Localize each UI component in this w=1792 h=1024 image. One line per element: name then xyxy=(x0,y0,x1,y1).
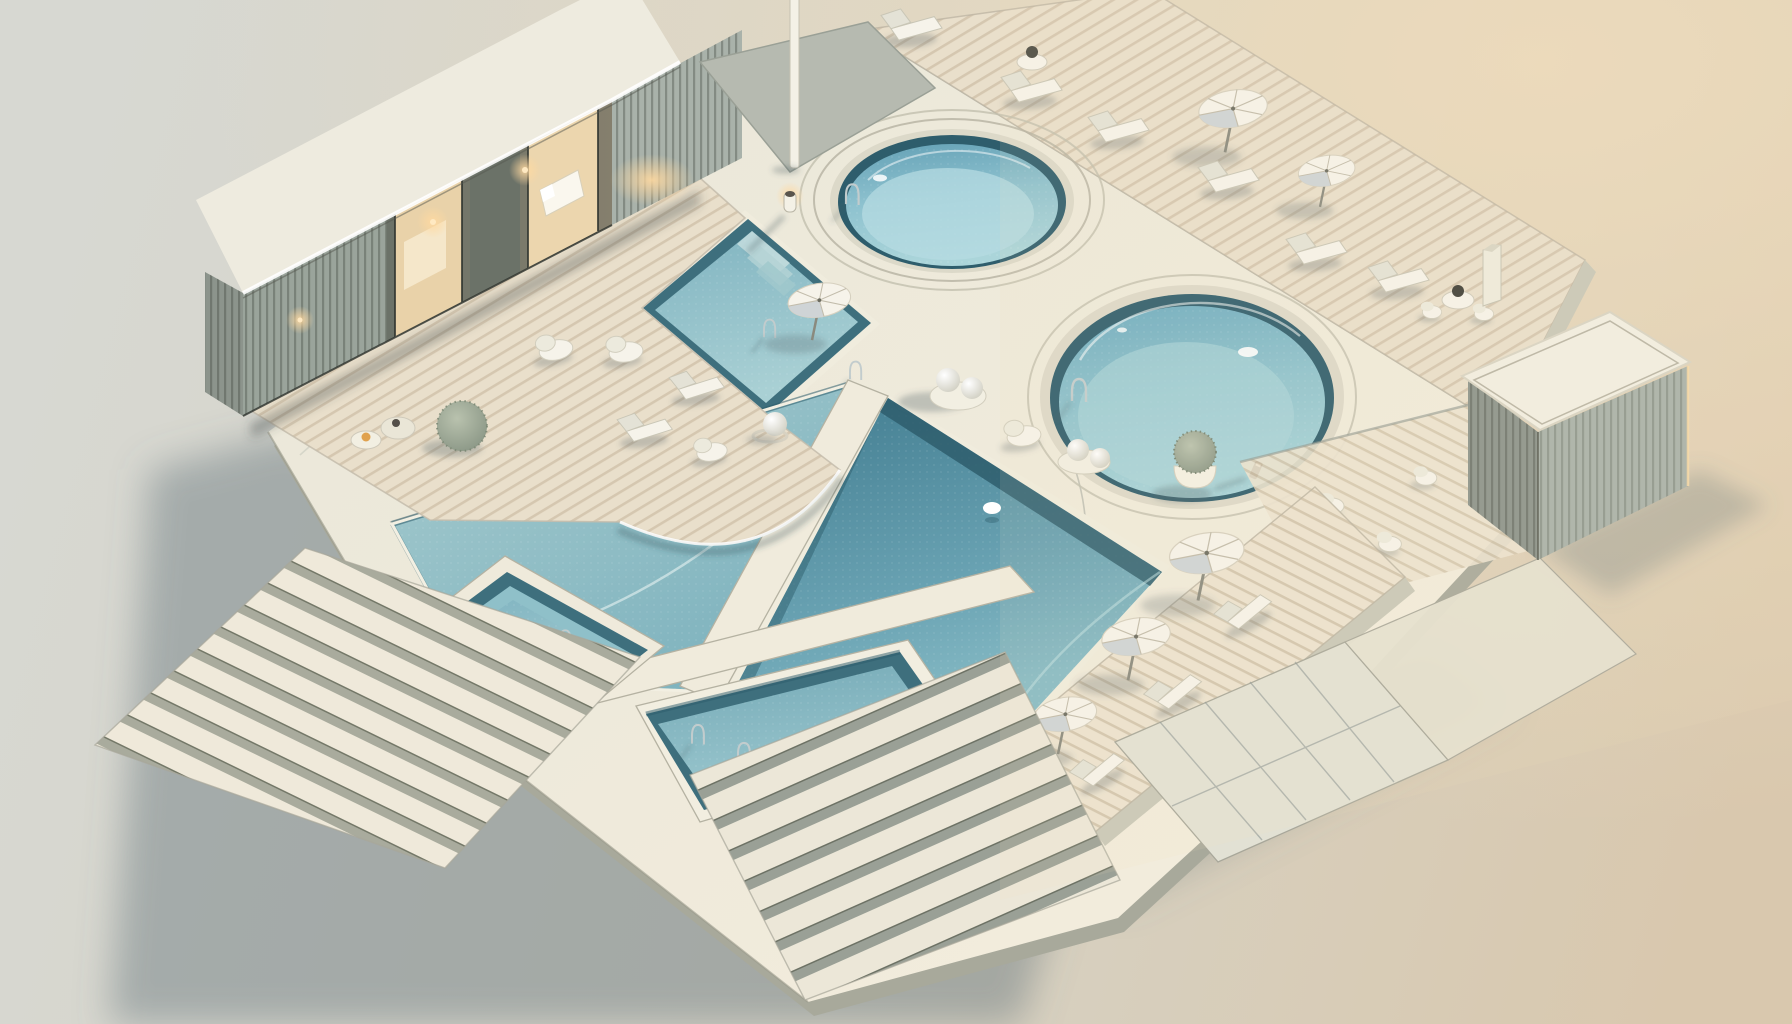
pool-float xyxy=(983,502,1001,514)
pool-complex-render: Minimalist isometric 3D render of a luxu… xyxy=(0,0,1792,1024)
end-wall-glow xyxy=(610,154,694,206)
flag-pole xyxy=(790,0,799,168)
render-stage: Minimalist isometric 3D render of a luxu… xyxy=(0,0,1792,1024)
